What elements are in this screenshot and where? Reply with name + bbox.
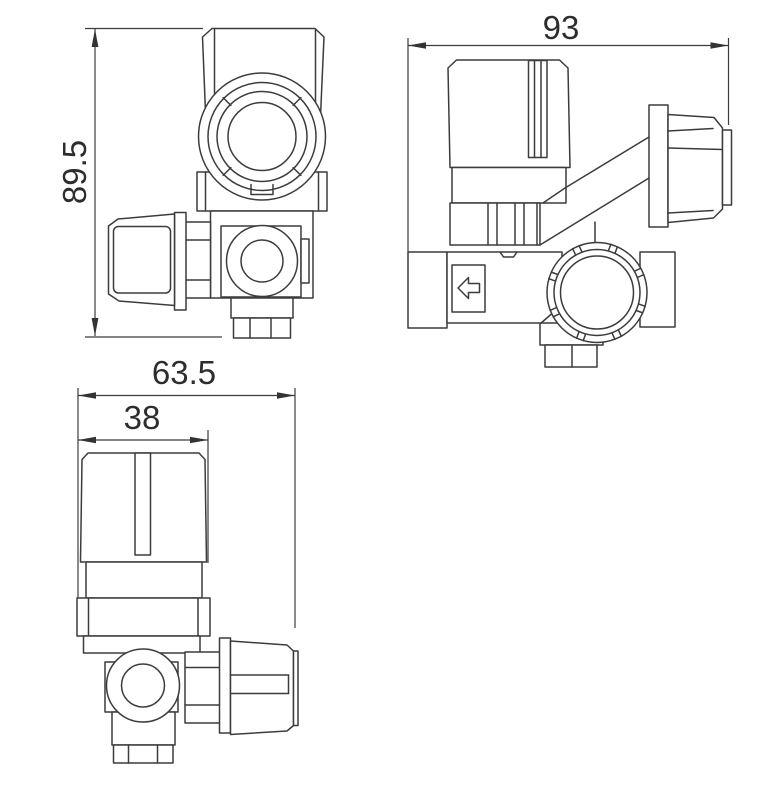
side-view: 93 [408,9,732,367]
flow-direction-marker [452,265,485,312]
bottom-compression-fitting [185,638,298,735]
dim-label-93: 93 [543,9,580,46]
bottom-valve-body [77,598,210,653]
bottom-view: 63.5 38 [77,354,298,763]
bottom-port [105,649,180,763]
front-compression-fitting [109,213,211,311]
front-head-cap-ring [199,73,326,200]
side-union-ring [547,243,647,343]
front-outlet-stub [231,298,293,338]
dim-label-63-5: 63.5 [152,354,216,391]
dim-label-89-5: 89.5 [56,140,93,204]
bottom-knob [81,453,207,598]
technical-drawing-valve: 89.5 [0,0,773,800]
front-view: 89.5 [56,29,327,339]
side-knob [448,60,570,203]
side-ribbed-collar [450,203,540,245]
drawing-svg: 89.5 [0,0,773,800]
side-right-fitting [649,105,732,227]
front-bottom-port [221,226,309,298]
dim-label-38: 38 [124,399,161,436]
